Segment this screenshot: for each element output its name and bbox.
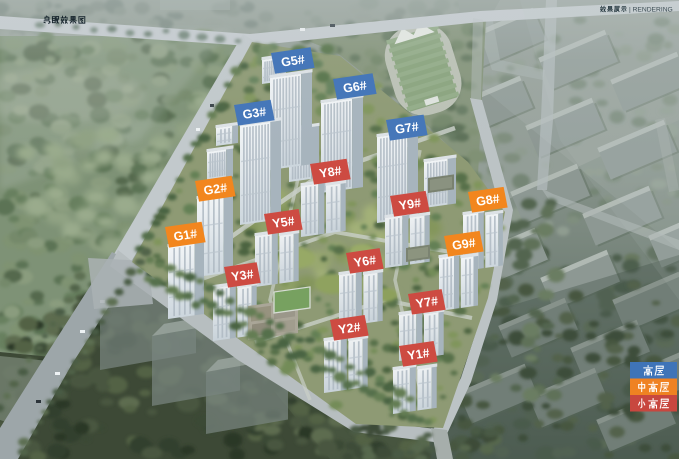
svg-text:| RENDERING: | RENDERING	[629, 7, 673, 14]
